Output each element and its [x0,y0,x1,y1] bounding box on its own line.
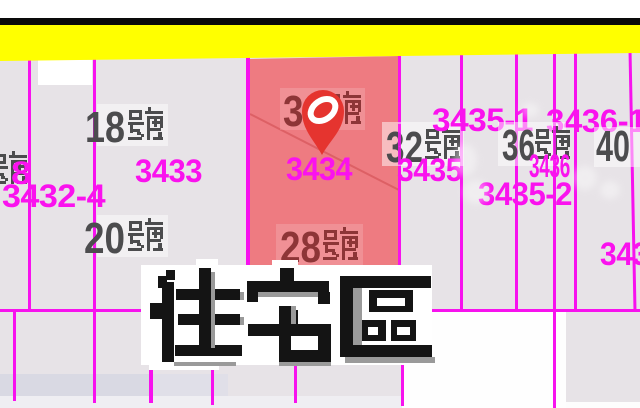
svg-text:18: 18 [85,103,125,152]
svg-text:3433: 3433 [135,153,202,189]
svg-text:3435: 3435 [397,152,462,188]
svg-text:40: 40 [596,122,630,171]
svg-text:20: 20 [84,214,125,263]
svg-text:8: 8 [11,155,31,191]
svg-text:3434: 3434 [286,151,353,187]
svg-text:3435-2: 3435-2 [478,176,572,212]
svg-text:3435: 3435 [600,236,640,272]
